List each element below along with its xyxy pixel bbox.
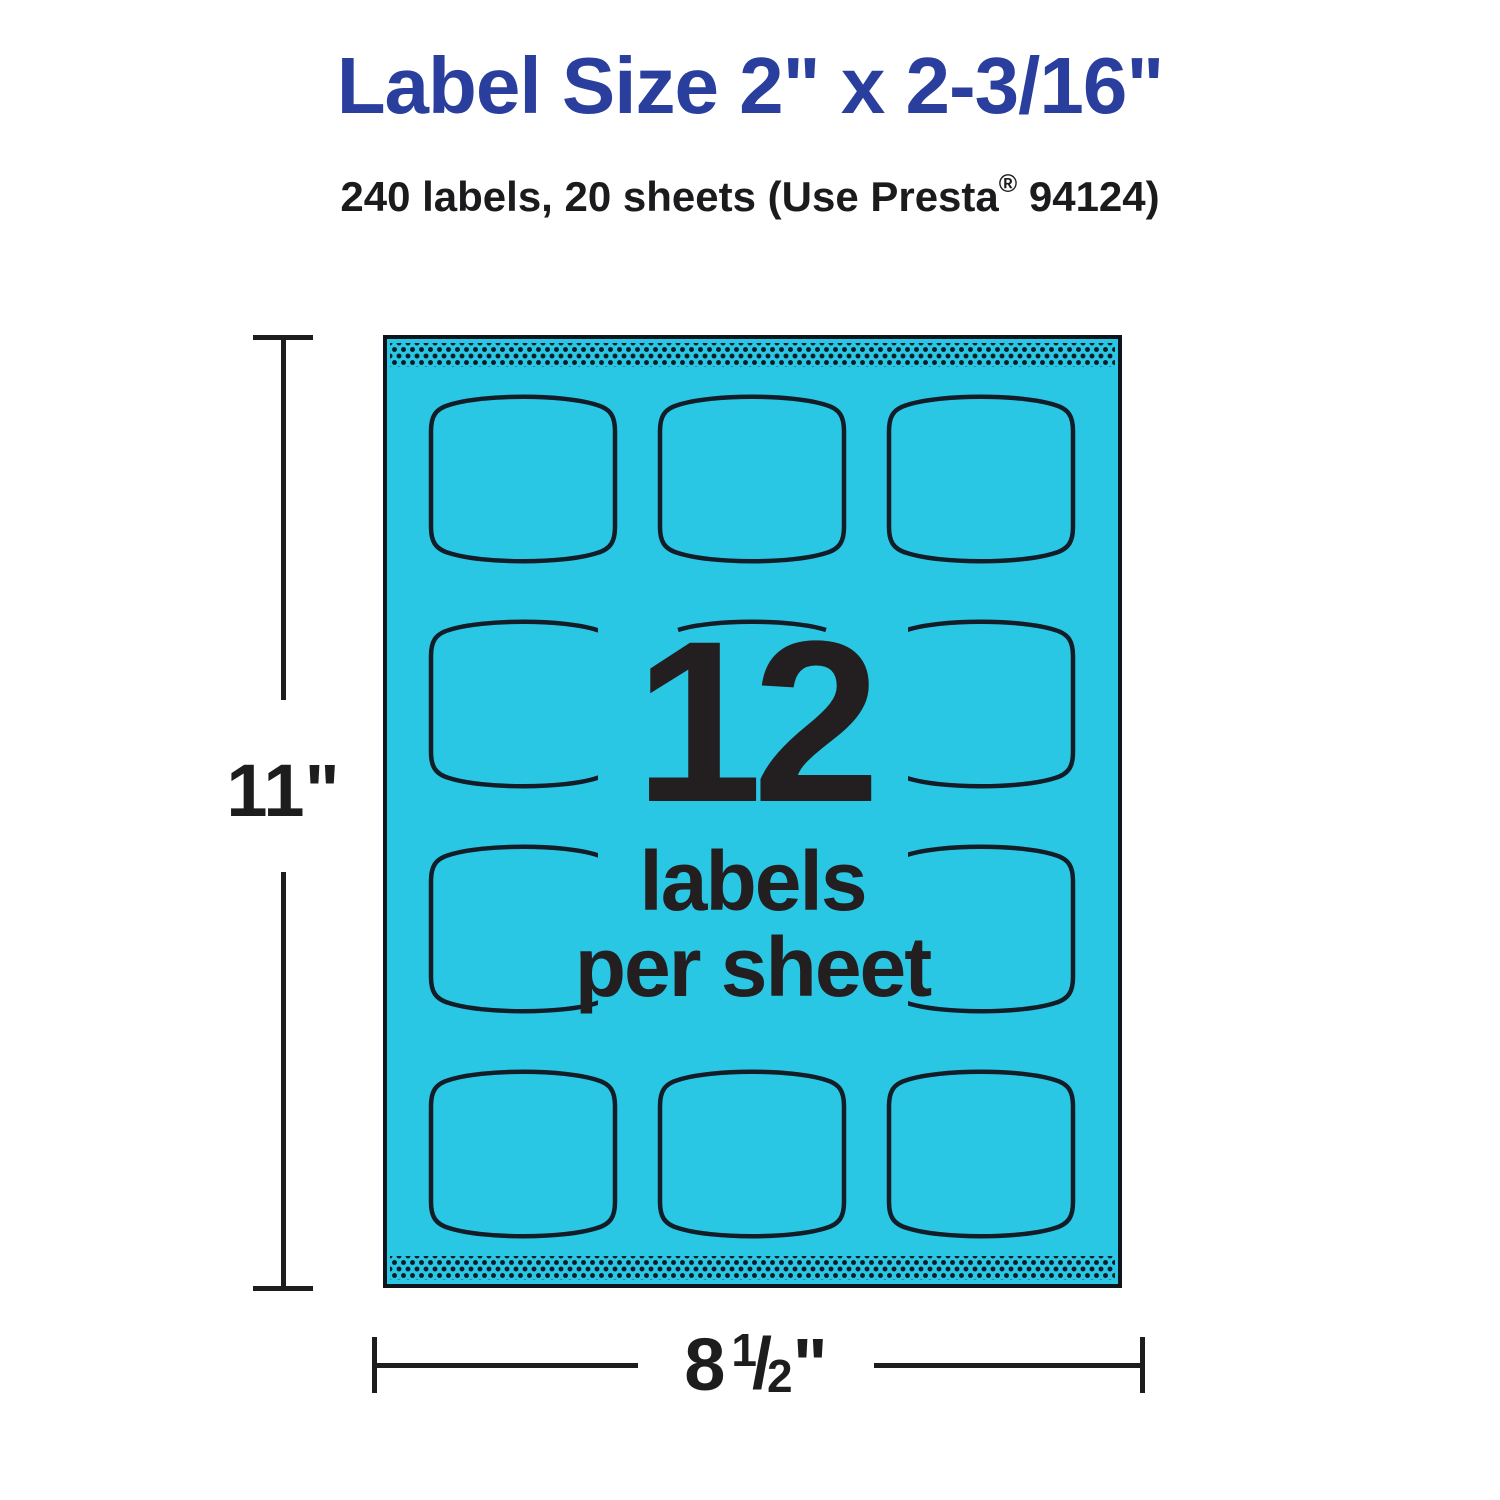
registered-trademark-symbol: ® <box>999 170 1017 198</box>
width-dimension-label: 81/2" <box>625 1322 887 1407</box>
label-outline <box>889 1072 1073 1237</box>
height-dimension-line-upper <box>281 337 286 700</box>
height-dimension-line-lower <box>281 872 286 1288</box>
height-dimension-label: 11" <box>193 748 373 833</box>
subtitle-text: 240 labels, 20 sheets (Use Presta <box>340 173 998 220</box>
width-dimension-cap-right <box>1140 1337 1145 1393</box>
width-dimension-line-right <box>874 1363 1140 1368</box>
label-outline <box>660 397 844 562</box>
label-outline <box>431 1072 615 1237</box>
width-dimension-line-left <box>374 1363 638 1368</box>
label-grid <box>387 339 1118 1284</box>
label-outline <box>889 397 1073 562</box>
label-outline <box>431 847 615 1012</box>
label-outline <box>889 622 1073 787</box>
width-fraction-denominator: 2 <box>767 1350 793 1402</box>
subtitle-sku: 94124) <box>1017 173 1159 220</box>
page-subtitle: 240 labels, 20 sheets (Use Presta® 94124… <box>0 170 1500 221</box>
label-outline <box>431 622 615 787</box>
page-title: Label Size 2" x 2-3/16" <box>0 40 1500 132</box>
width-unit-mark: " <box>793 1323 828 1406</box>
label-product-illustration: Label Size 2" x 2-3/16" 240 labels, 20 s… <box>0 0 1500 1500</box>
label-outline <box>660 1072 844 1237</box>
label-outline <box>889 847 1073 1012</box>
height-dimension-cap-bottom <box>253 1286 313 1291</box>
center-text-mask <box>598 609 908 1052</box>
label-sheet <box>383 335 1122 1288</box>
width-whole-number: 8 <box>684 1323 725 1406</box>
label-outline <box>431 397 615 562</box>
